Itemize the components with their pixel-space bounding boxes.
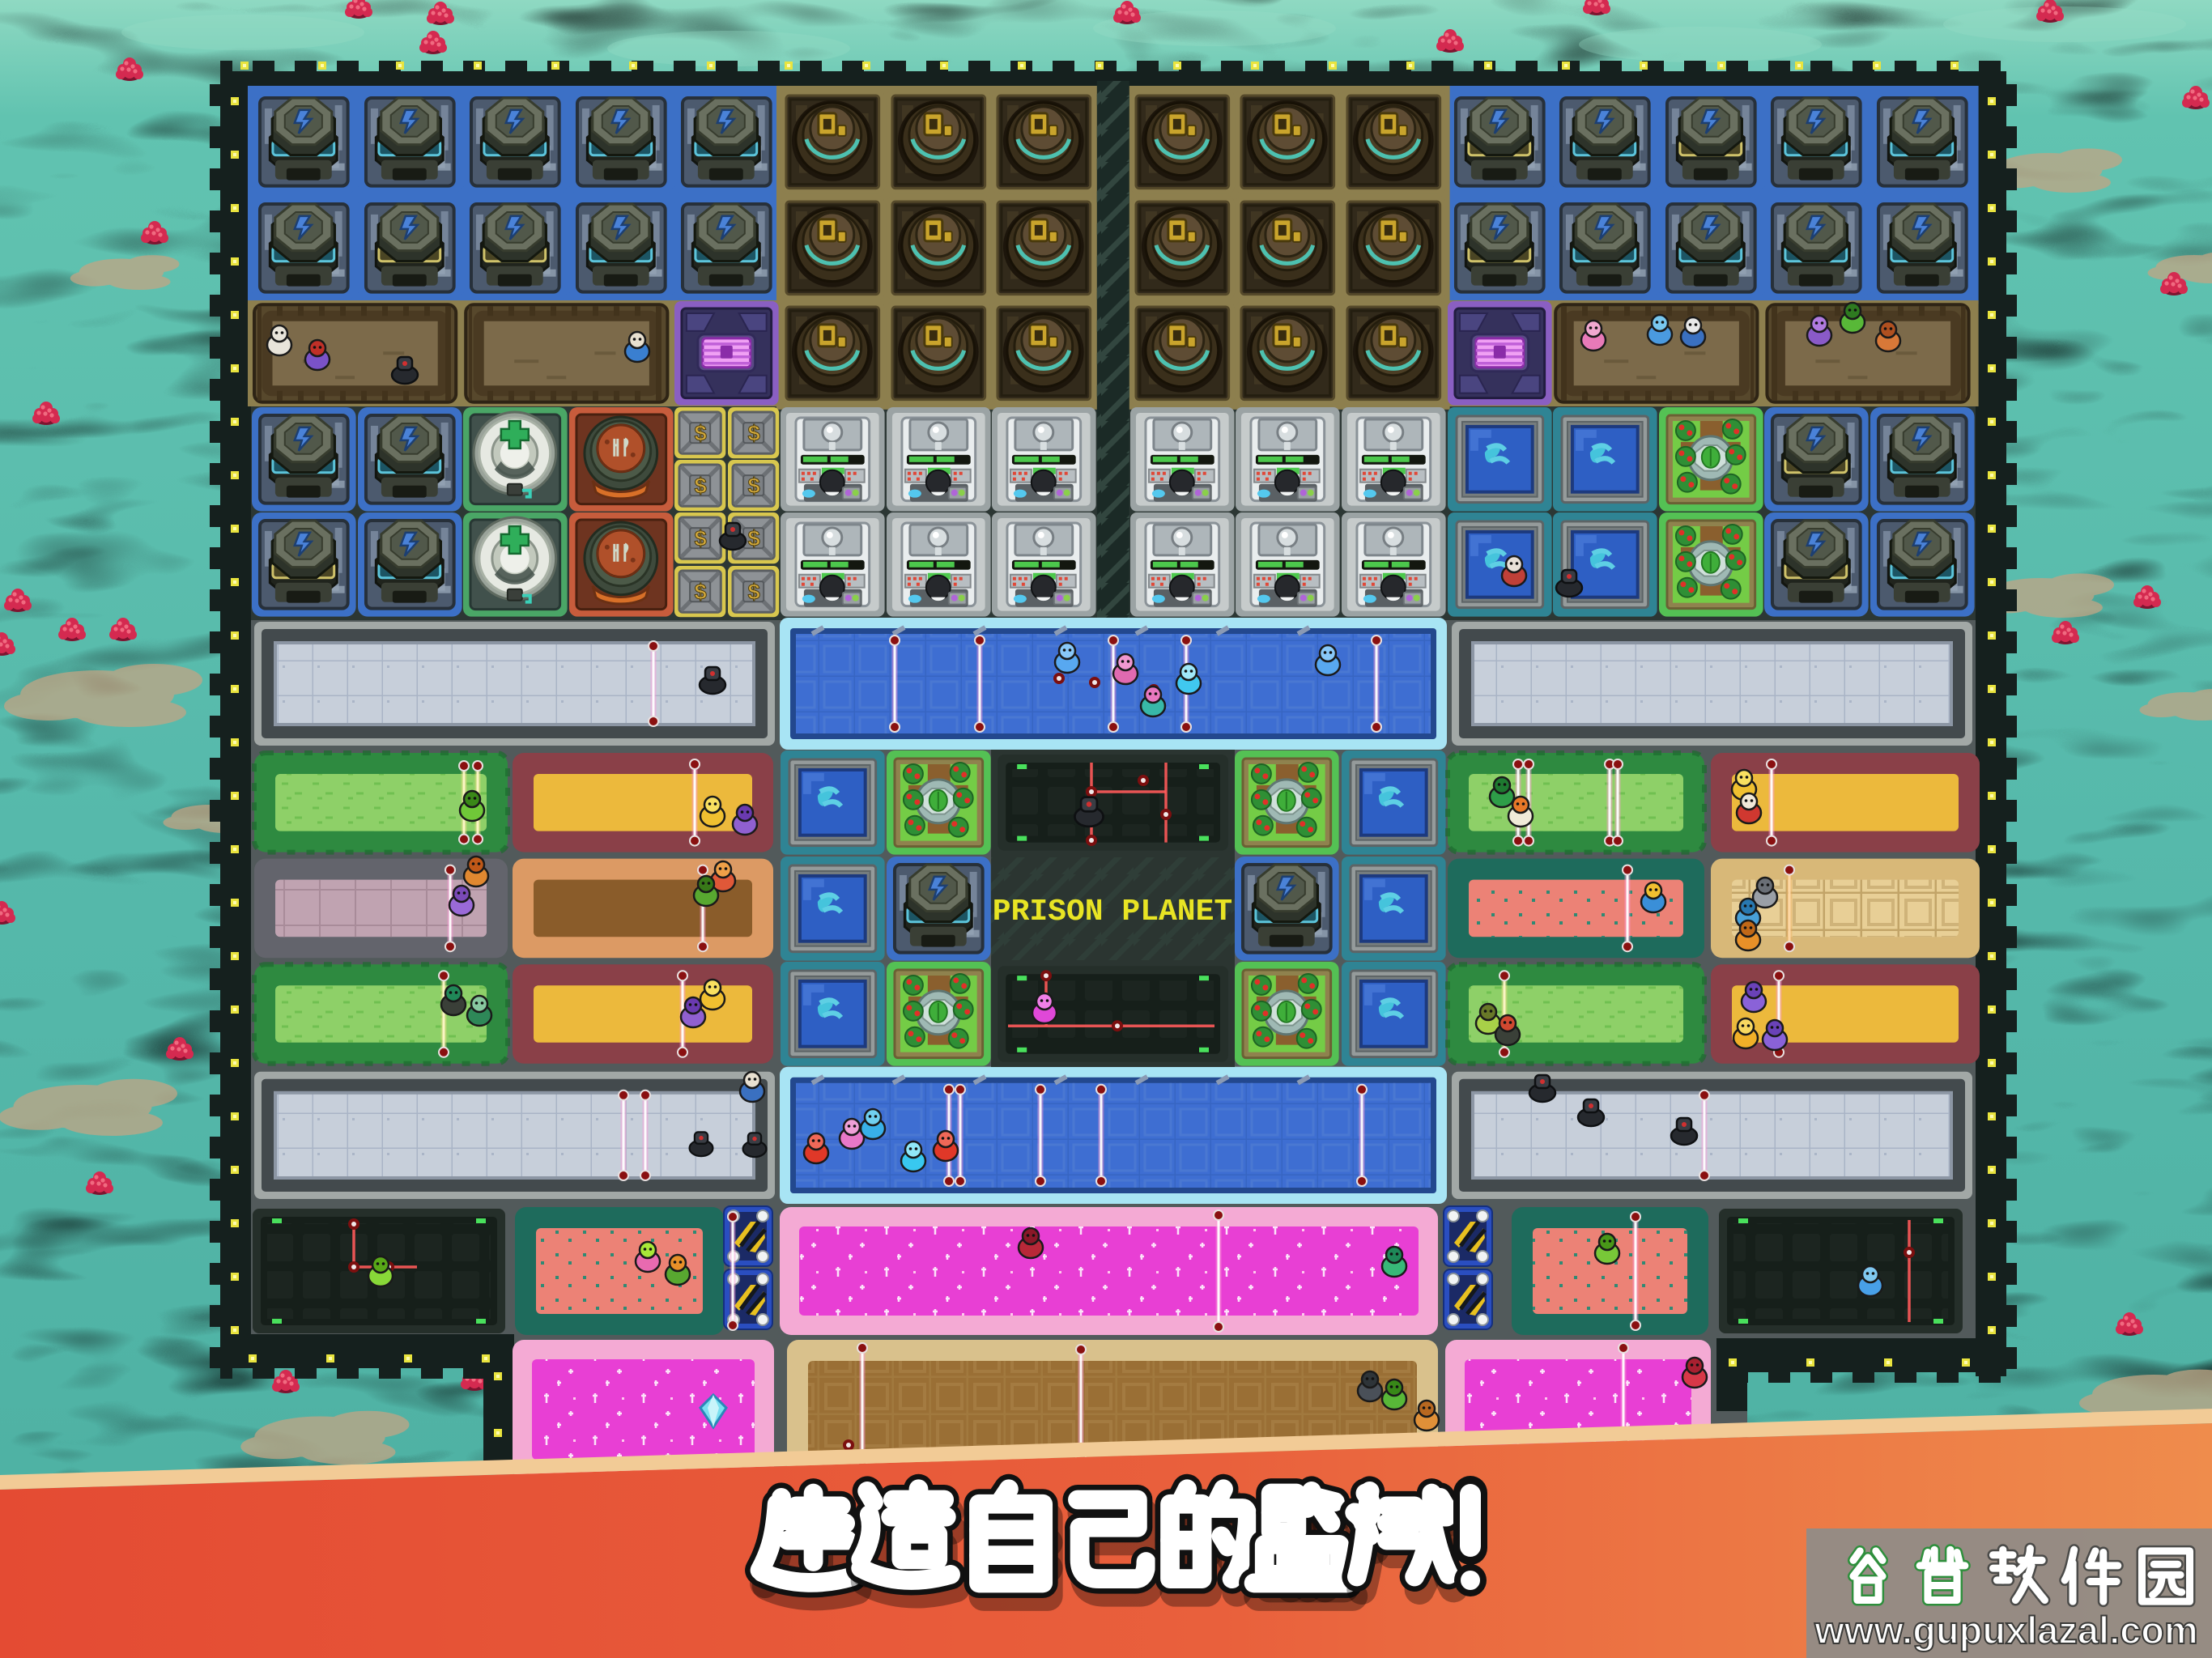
svg-text:www.gupuxlazal.com: www.gupuxlazal.com [1814,1609,2198,1652]
svg-text:PRISON PLANET: PRISON PLANET [993,895,1232,929]
